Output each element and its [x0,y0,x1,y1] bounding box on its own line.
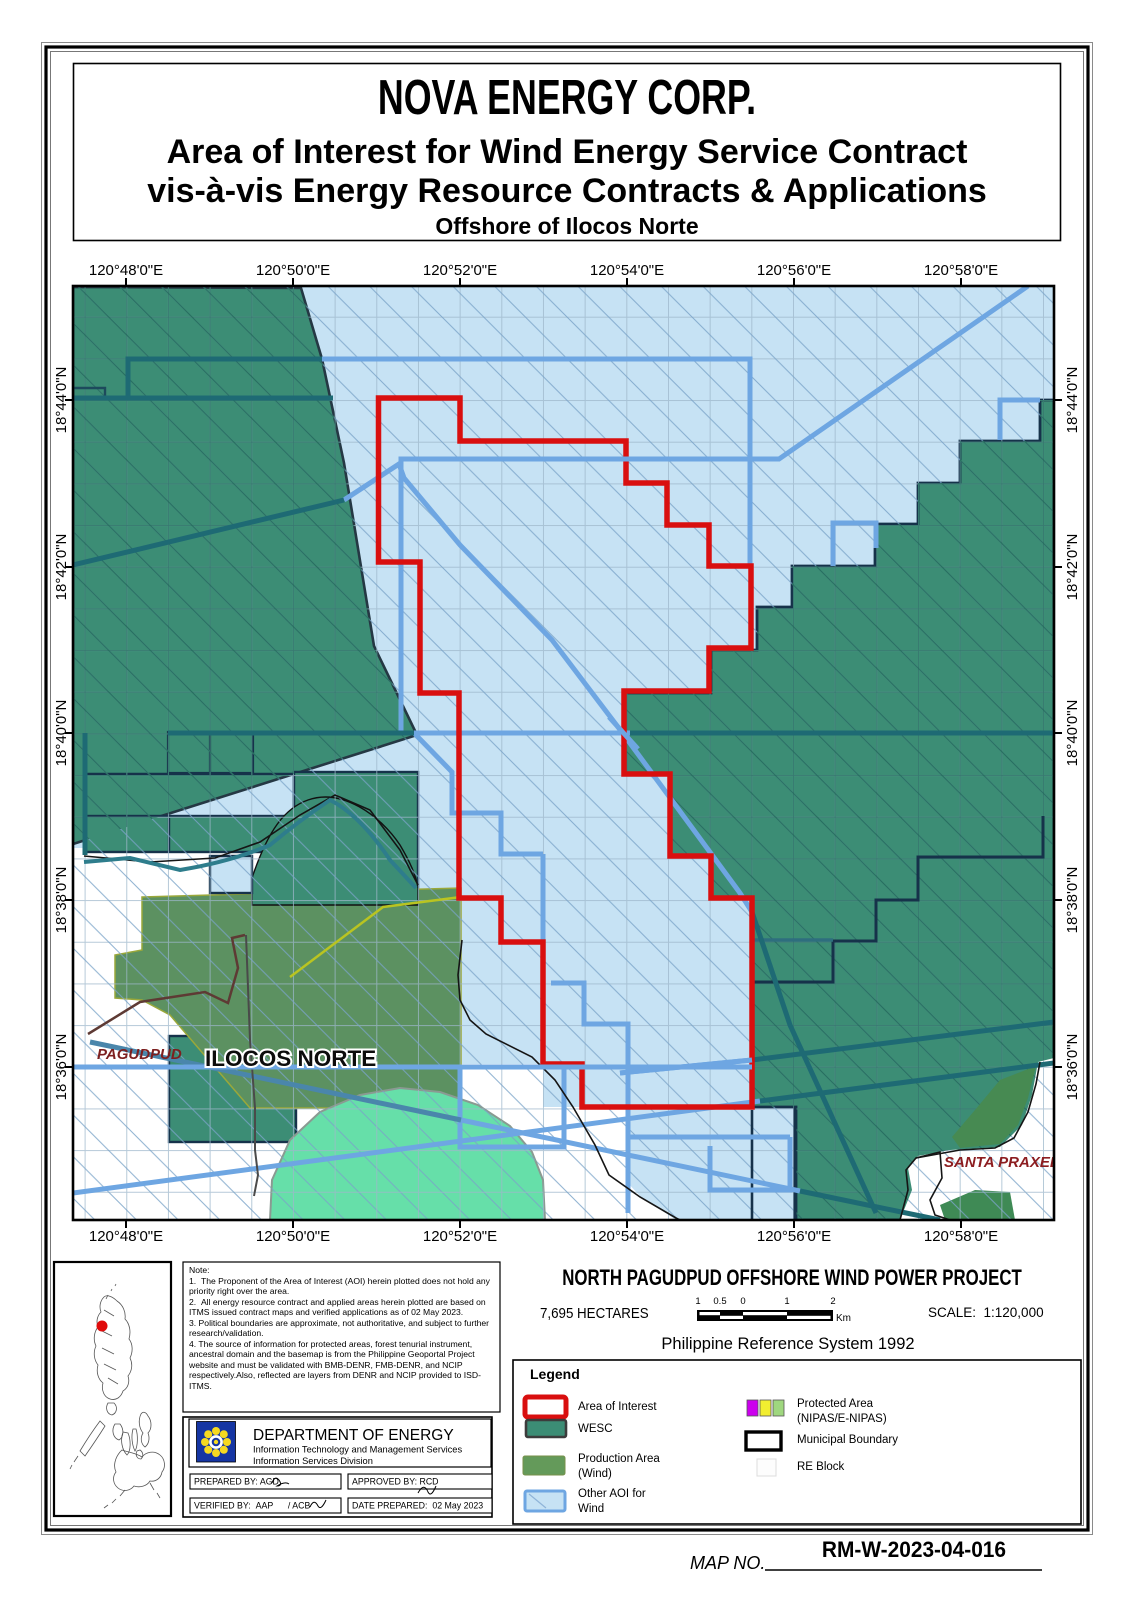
svg-text:1: 1 [784,1296,789,1307]
svg-text:PAGUDPUD: PAGUDPUD [97,1046,182,1063]
svg-text:(Wind): (Wind) [578,1468,612,1480]
svg-text:3. Political boundaries are ap: 3. Political boundaries are approximate,… [189,1318,489,1328]
svg-text:Legend: Legend [530,1366,580,1382]
svg-text:18°40'0"N: 18°40'0"N [53,700,70,767]
svg-text:120°58'0"E: 120°58'0"E [924,1228,998,1245]
svg-text:NOVA ENERGY CORP.: NOVA ENERGY CORP. [378,71,756,126]
svg-text:120°58'0"E: 120°58'0"E [924,262,998,279]
svg-text:Note:: Note: [189,1265,210,1275]
svg-text:MAP NO.: MAP NO. [690,1553,765,1573]
svg-text:priority right over the area.: priority right over the area. [189,1286,289,1296]
svg-text:Other AOI for: Other AOI for [578,1488,646,1500]
svg-text:ancestral domain and the basem: ancestral domain and the basemap is from… [189,1349,475,1359]
svg-text:vis-à-vis Energy Resource Cont: vis-à-vis Energy Resource Contracts & Ap… [147,172,987,210]
svg-text:18°38'0"N: 18°38'0"N [53,867,70,934]
svg-text:2: 2 [830,1296,835,1307]
svg-text:18°36'0"N: 18°36'0"N [53,1034,70,1101]
svg-text:APPROVED BY: RCD: APPROVED BY: RCD [352,1477,439,1487]
svg-text:DEPARTMENT OF ENERGY: DEPARTMENT OF ENERGY [253,1427,454,1444]
svg-text:VERIFIED BY: AAP / ACB: VERIFIED BY: AAP / ACB [194,1501,310,1511]
svg-text:ITMS issued contract maps and: ITMS issued contract maps and verified a… [189,1307,463,1317]
svg-text:Philippine Reference System 19: Philippine Reference System 1992 [661,1335,914,1353]
svg-text:DATE PREPARED: 02 May 2023: DATE PREPARED: 02 May 2023 [352,1501,483,1511]
svg-text:WESC: WESC [578,1423,613,1435]
svg-text:Area of Interest: Area of Interest [578,1401,657,1413]
svg-text:ITMS.: ITMS. [189,1381,212,1391]
svg-text:1: 1 [695,1296,700,1307]
svg-text:120°54'0"E: 120°54'0"E [590,1228,664,1245]
svg-text:ILOCOS NORTE: ILOCOS NORTE [205,1046,376,1071]
svg-text:Production Area: Production Area [578,1453,660,1465]
svg-text:18°38'0"N: 18°38'0"N [1064,867,1081,934]
svg-text:Area of Interest for Wind Ener: Area of Interest for Wind Energy Service… [167,133,968,171]
svg-text:RM-W-2023-04-016: RM-W-2023-04-016 [822,1538,1006,1563]
svg-text:Municipal Boundary: Municipal Boundary [797,1434,898,1446]
svg-text:120°50'0"E: 120°50'0"E [256,1228,330,1245]
svg-text:120°56'0"E: 120°56'0"E [757,262,831,279]
svg-text:4. The source of information f: 4. The source of information for protect… [189,1339,472,1349]
svg-text:18°42'0"N: 18°42'0"N [1064,534,1081,601]
svg-text:120°48'0"E: 120°48'0"E [89,1228,163,1245]
svg-text:Information Services Division: Information Services Division [253,1456,373,1466]
svg-text:18°42'0"N: 18°42'0"N [53,534,70,601]
svg-text:website and must be validated: website and must be validated with BMB-D… [188,1360,463,1370]
svg-text:SANTA PRAXEDES: SANTA PRAXEDES [944,1154,1081,1171]
svg-text:0: 0 [740,1296,745,1307]
svg-text:(NIPAS/E-NIPAS): (NIPAS/E-NIPAS) [797,1413,887,1425]
svg-text:Protected Area: Protected Area [797,1398,874,1410]
svg-text:18°40'0"N: 18°40'0"N [1064,700,1081,767]
svg-text:120°52'0"E: 120°52'0"E [423,262,497,279]
svg-text:SCALE: 1:120,000: SCALE: 1:120,000 [928,1305,1044,1320]
svg-text:Offshore of Ilocos Norte: Offshore of Ilocos Norte [435,213,698,239]
svg-text:PREPARED BY: AGD: PREPARED BY: AGD [194,1477,279,1487]
svg-text:120°54'0"E: 120°54'0"E [590,262,664,279]
svg-text:NORTH PAGUDPUD OFFSHORE WIND P: NORTH PAGUDPUD OFFSHORE WIND POWER PROJE… [562,1266,1022,1291]
svg-text:Information Technology and Man: Information Technology and Management Se… [253,1445,462,1455]
svg-text:respectively.Also, reflected a: respectively.Also, reflected are layers … [189,1370,481,1380]
svg-text:0.5: 0.5 [713,1296,726,1307]
svg-text:7,695 HECTARES: 7,695 HECTARES [540,1304,649,1321]
svg-text:2. All energy resource contra: 2. All energy resource contract and appl… [189,1297,486,1307]
svg-text:RE Block: RE Block [797,1461,845,1473]
svg-text:research/validation.: research/validation. [189,1328,264,1338]
svg-text:18°36'0"N: 18°36'0"N [1064,1034,1081,1101]
svg-text:120°52'0"E: 120°52'0"E [423,1228,497,1245]
svg-text:18°44'0"N: 18°44'0"N [53,367,70,434]
svg-text:120°50'0"E: 120°50'0"E [256,262,330,279]
svg-text:1. The Proponent of the Area: 1. The Proponent of the Area of Interest… [189,1276,491,1286]
svg-text:Km: Km [836,1313,851,1324]
svg-text:18°44'0"N: 18°44'0"N [1064,367,1081,434]
svg-text:Wind: Wind [578,1503,604,1515]
svg-text:120°48'0"E: 120°48'0"E [89,262,163,279]
svg-text:120°56'0"E: 120°56'0"E [757,1228,831,1245]
